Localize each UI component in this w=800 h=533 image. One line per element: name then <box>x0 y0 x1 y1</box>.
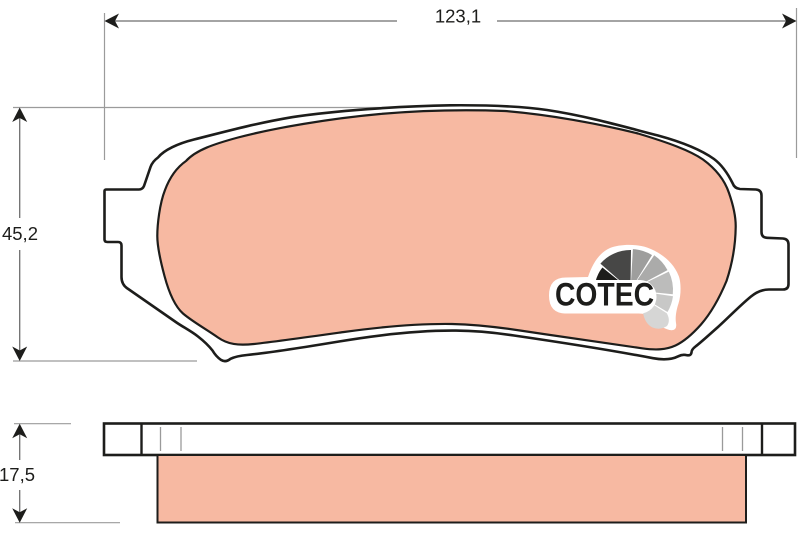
svg-text:17,5: 17,5 <box>0 464 35 485</box>
svg-text:45,2: 45,2 <box>2 223 38 244</box>
svg-text:123,1: 123,1 <box>435 6 481 27</box>
svg-text:COTEC: COTEC <box>555 277 654 313</box>
